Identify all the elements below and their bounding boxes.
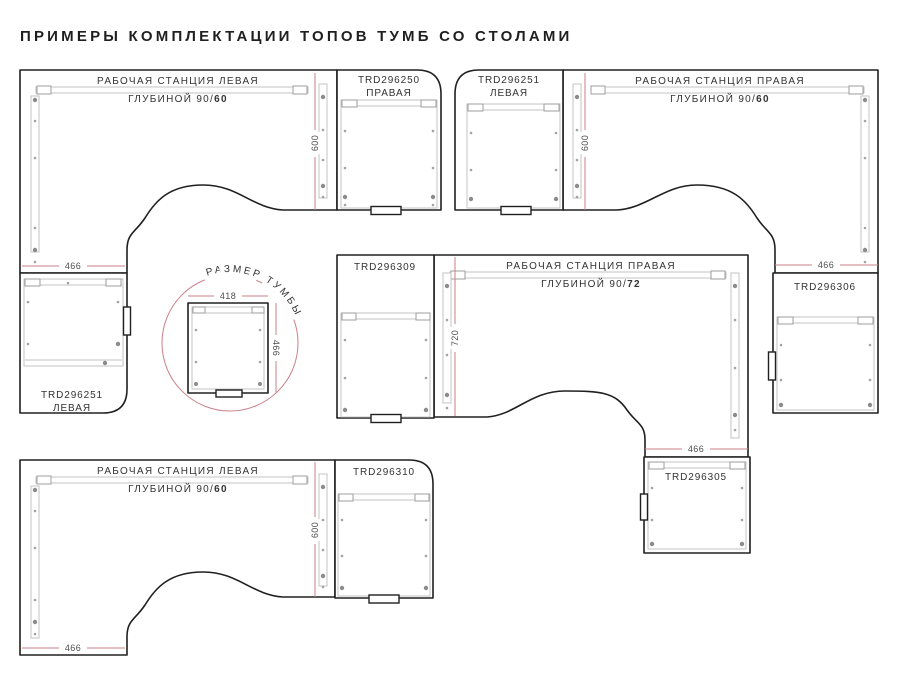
desk-rail <box>450 272 726 278</box>
cabinet-label-trd296251-top: TRD296251ЛЕВАЯ <box>478 74 540 100</box>
cabinet-label-trd296310: TRD296310 <box>353 466 415 479</box>
desk-rail <box>319 474 327 586</box>
station-depth-bottomleft: ГЛУБИНОЙ 90/60 <box>128 484 228 495</box>
cabinet-label-trd296306: TRD296306 <box>794 281 856 294</box>
station-depth-topright: ГЛУБИНОЙ 90/60 <box>670 94 770 105</box>
dim-466-bottomleft: 466 <box>62 643 84 653</box>
dim-600-bottomleft: 600 <box>310 519 320 541</box>
cabinet-handle <box>124 307 131 335</box>
station-label-middle: РАБОЧАЯ СТАНЦИЯ ПРАВАЯ <box>506 261 676 272</box>
rail-bracket <box>37 86 51 94</box>
cabinet-box-trd296310 <box>335 460 433 598</box>
desk-rail <box>31 486 39 638</box>
desk-rail <box>36 87 308 93</box>
rail-bracket <box>293 86 307 94</box>
dim-600-topleft: 600 <box>310 132 320 154</box>
page-title: ПРИМЕРЫ КОМПЛЕКТАЦИИ ТОПОВ ТУМБ СО СТОЛА… <box>20 28 573 45</box>
cabinet-box-trd296306 <box>773 273 878 413</box>
cabinet-handle <box>216 390 242 397</box>
cabinet-label-trd296251-left: TRD296251ЛЕВАЯ <box>41 389 103 415</box>
dim-600-topright: 600 <box>580 132 590 154</box>
cabinet-handle <box>371 415 401 423</box>
dim-466-middle: 466 <box>685 444 707 454</box>
station-label-bottomleft: РАБОЧАЯ СТАНЦИЯ ЛЕВАЯ <box>97 466 259 477</box>
dim-418-size: 418 <box>217 291 239 301</box>
cabinet-label-trd296305: TRD296305 <box>665 471 727 484</box>
cabinet-handle <box>501 207 531 215</box>
station-depth-middle: ГЛУБИНОЙ 90/72 <box>541 279 641 290</box>
cabinet-handle <box>641 494 648 520</box>
cabinet-label-trd296250: TRD296250ПРАВАЯ <box>358 74 420 100</box>
catalog-page: РАЗМЕР ТУМБЫ ПРИМЕРЫ КОМПЛЕКТАЦИИ ТОПОВ … <box>0 0 900 675</box>
cabinet-size-box <box>188 303 268 393</box>
desk-rail <box>592 87 864 93</box>
cabinet-label-trd296309: TRD296309 <box>354 261 416 274</box>
cabinet-handle <box>769 352 776 380</box>
dim-466-topright: 466 <box>815 260 837 270</box>
size-circle: РАЗМЕР ТУМБЫ <box>162 264 304 411</box>
desk-rail <box>36 477 308 483</box>
cabinet-box-trd296309 <box>337 255 434 418</box>
station-depth-topleft: ГЛУБИНОЙ 90/60 <box>128 94 228 105</box>
dim-466-size: 466 <box>271 337 281 359</box>
cabinet-handle <box>371 207 401 215</box>
station-label-topright: РАБОЧАЯ СТАНЦИЯ ПРАВАЯ <box>635 76 805 87</box>
desk-rail <box>319 84 327 198</box>
station-label-topleft: РАБОЧАЯ СТАНЦИЯ ЛЕВАЯ <box>97 76 259 87</box>
cabinet-handle <box>369 595 399 603</box>
dim-720-middle: 720 <box>450 327 460 349</box>
dim-466-topleft: 466 <box>62 261 84 271</box>
